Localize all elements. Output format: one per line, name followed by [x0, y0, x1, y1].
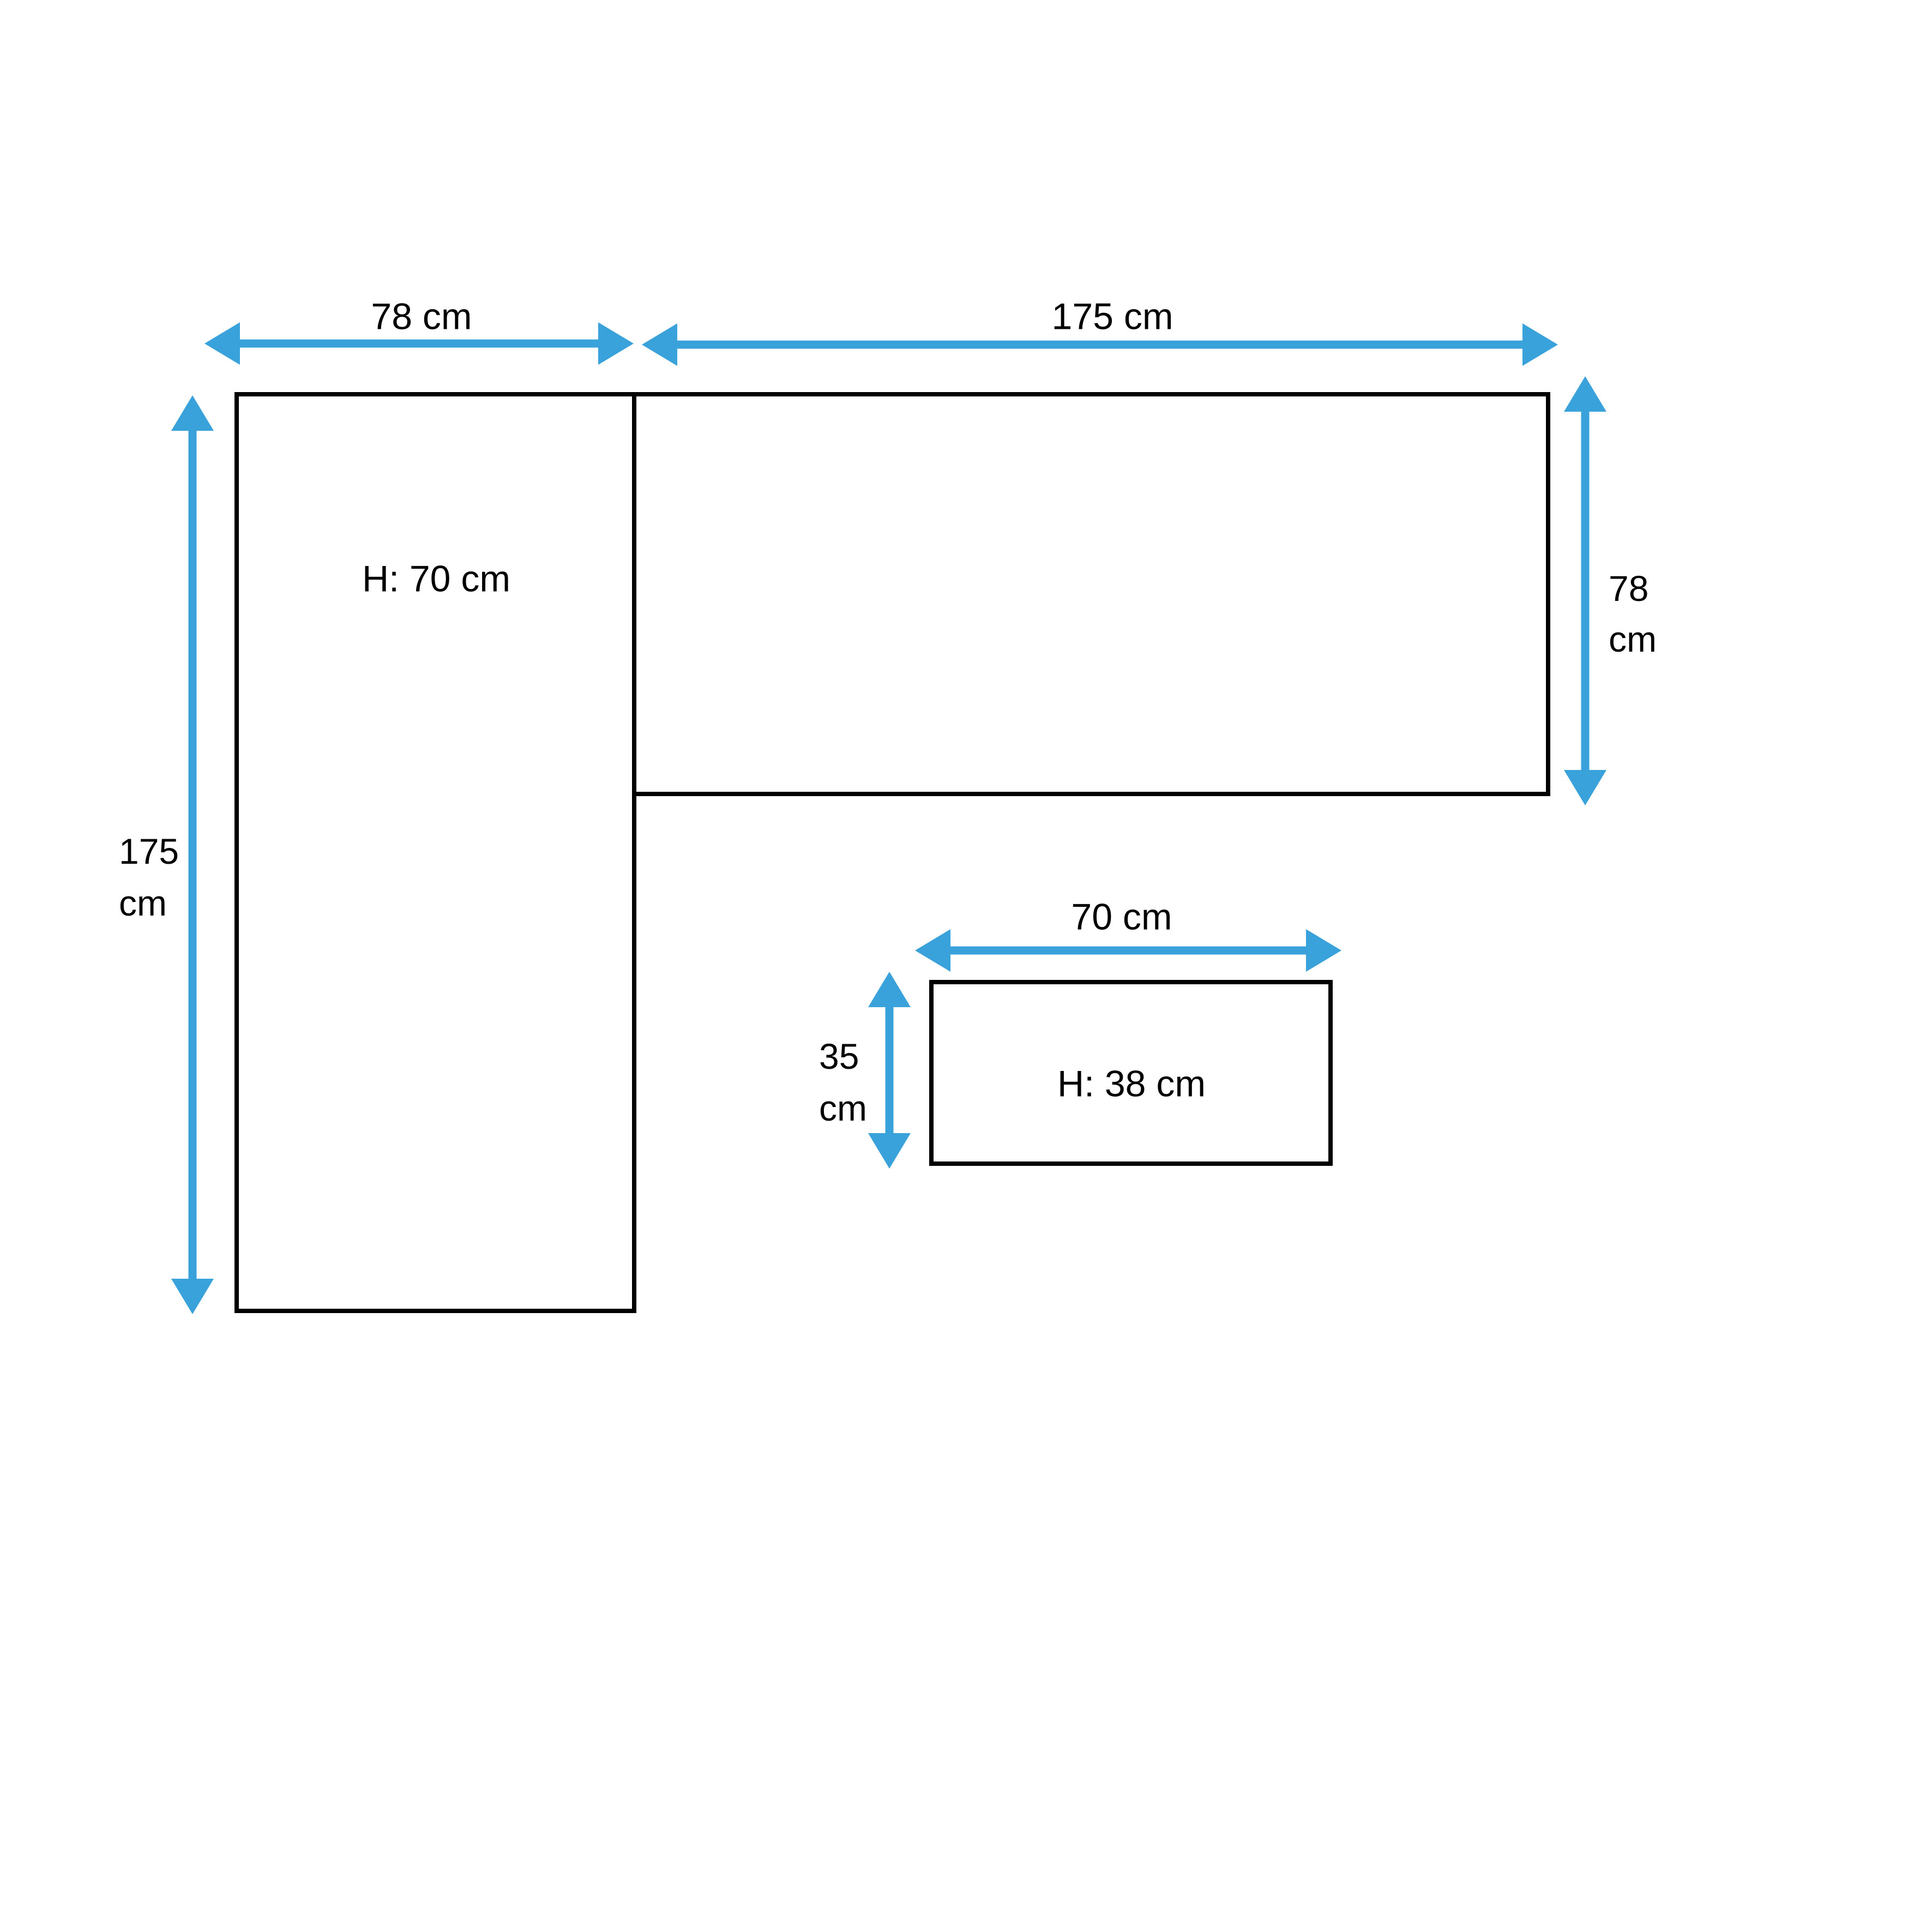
desk-top-depth-label: 78 cm [1609, 563, 1657, 665]
small-table-height-annotation: H: 38 cm [1057, 1064, 1206, 1105]
desk-side-length-unit: cm [119, 877, 179, 929]
desk-side-width-label: 78 cm [371, 297, 472, 338]
desk-top-depth-unit: cm [1609, 614, 1657, 665]
desk-side-length-label: 175 cm [119, 826, 179, 929]
small-table-depth-unit: cm [819, 1082, 867, 1134]
small-table-depth-label: 35 cm [819, 1031, 867, 1134]
desk-top-panel-outline [632, 392, 1550, 796]
desk-top-length-label: 175 cm [1052, 297, 1173, 338]
desk-height-annotation: H: 70 cm [362, 559, 510, 600]
desk-side-panel-outline [234, 392, 636, 1313]
small-table-depth-value: 35 [819, 1031, 867, 1082]
small-table-width-label: 70 cm [1071, 897, 1172, 938]
vertical-dimension-arrow-icon [1563, 376, 1607, 805]
desk-side-length-value: 175 [119, 826, 179, 877]
dimension-diagram: 78 cm 175 cm 175 cm 78 cm 70 cm 35 cm H:… [0, 0, 1932, 1932]
vertical-dimension-arrow-icon [868, 972, 911, 1169]
desk-top-depth-value: 78 [1609, 563, 1657, 614]
